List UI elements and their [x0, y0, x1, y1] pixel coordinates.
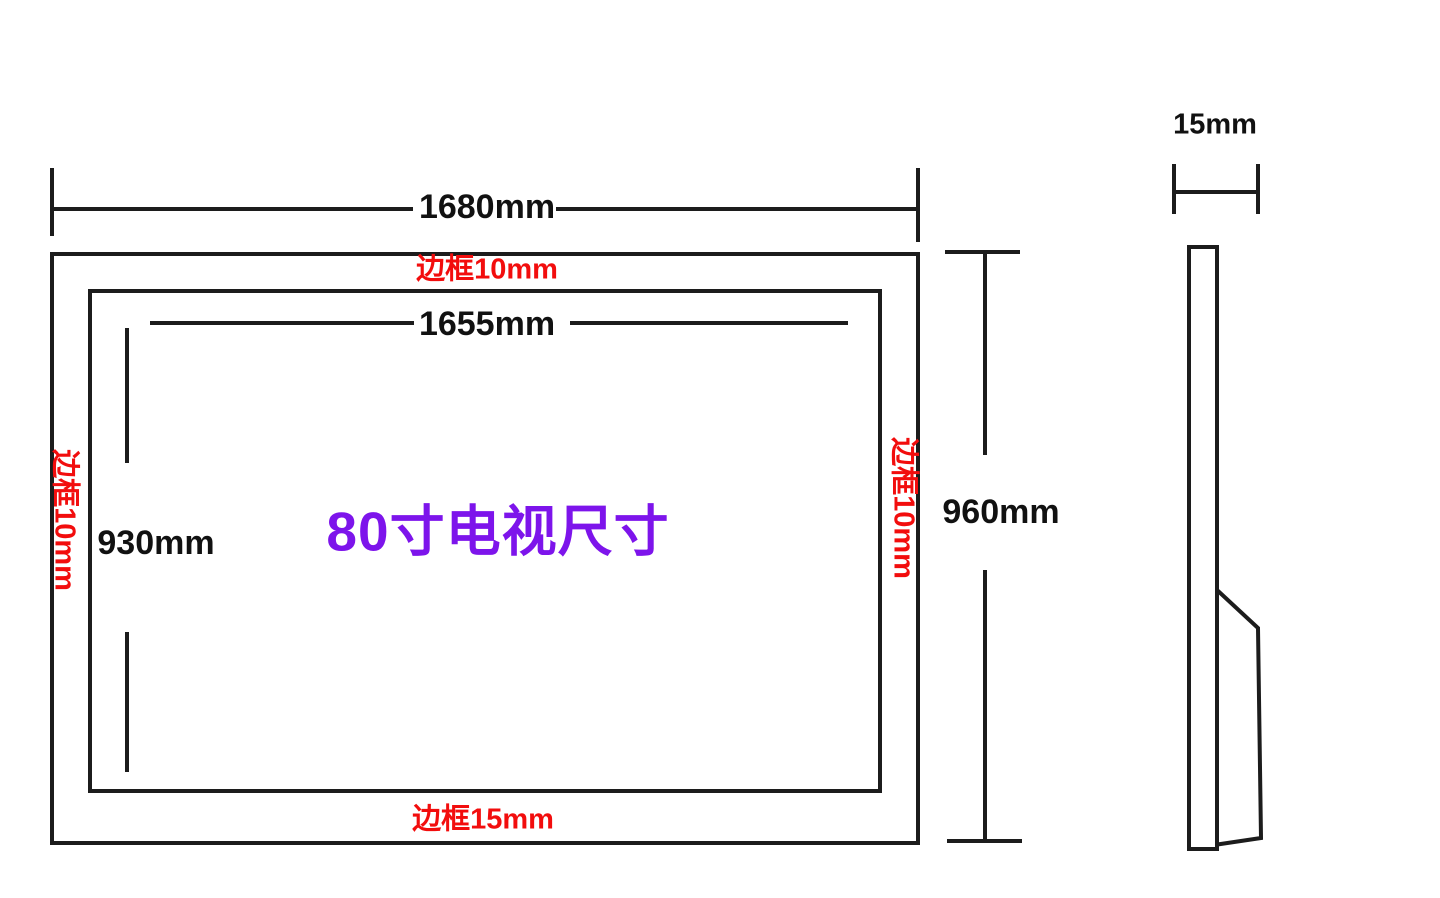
thickness-label: 15mm: [1173, 111, 1257, 140]
bezel-left-label: 边框10mm: [50, 449, 79, 591]
side-view-rear-bulge: [1214, 590, 1261, 845]
bezel-top-label: 边框10mm: [416, 256, 558, 285]
screen-width-label: 1655mm: [419, 307, 555, 341]
outer-height-label: 960mm: [942, 495, 1059, 529]
bezel-right-label: 边框10mm: [889, 437, 918, 579]
tv-dimension-diagram: 1680mm 边框10mm 1655mm 边框10mm 930mm 80寸电视尺…: [0, 0, 1440, 898]
screen-height-label: 930mm: [97, 526, 214, 560]
diagram-title: 80寸电视尺寸: [326, 505, 669, 560]
side-view-panel: [1189, 247, 1217, 849]
outer-width-label: 1680mm: [419, 190, 555, 224]
bezel-bottom-label: 边框15mm: [412, 806, 554, 835]
